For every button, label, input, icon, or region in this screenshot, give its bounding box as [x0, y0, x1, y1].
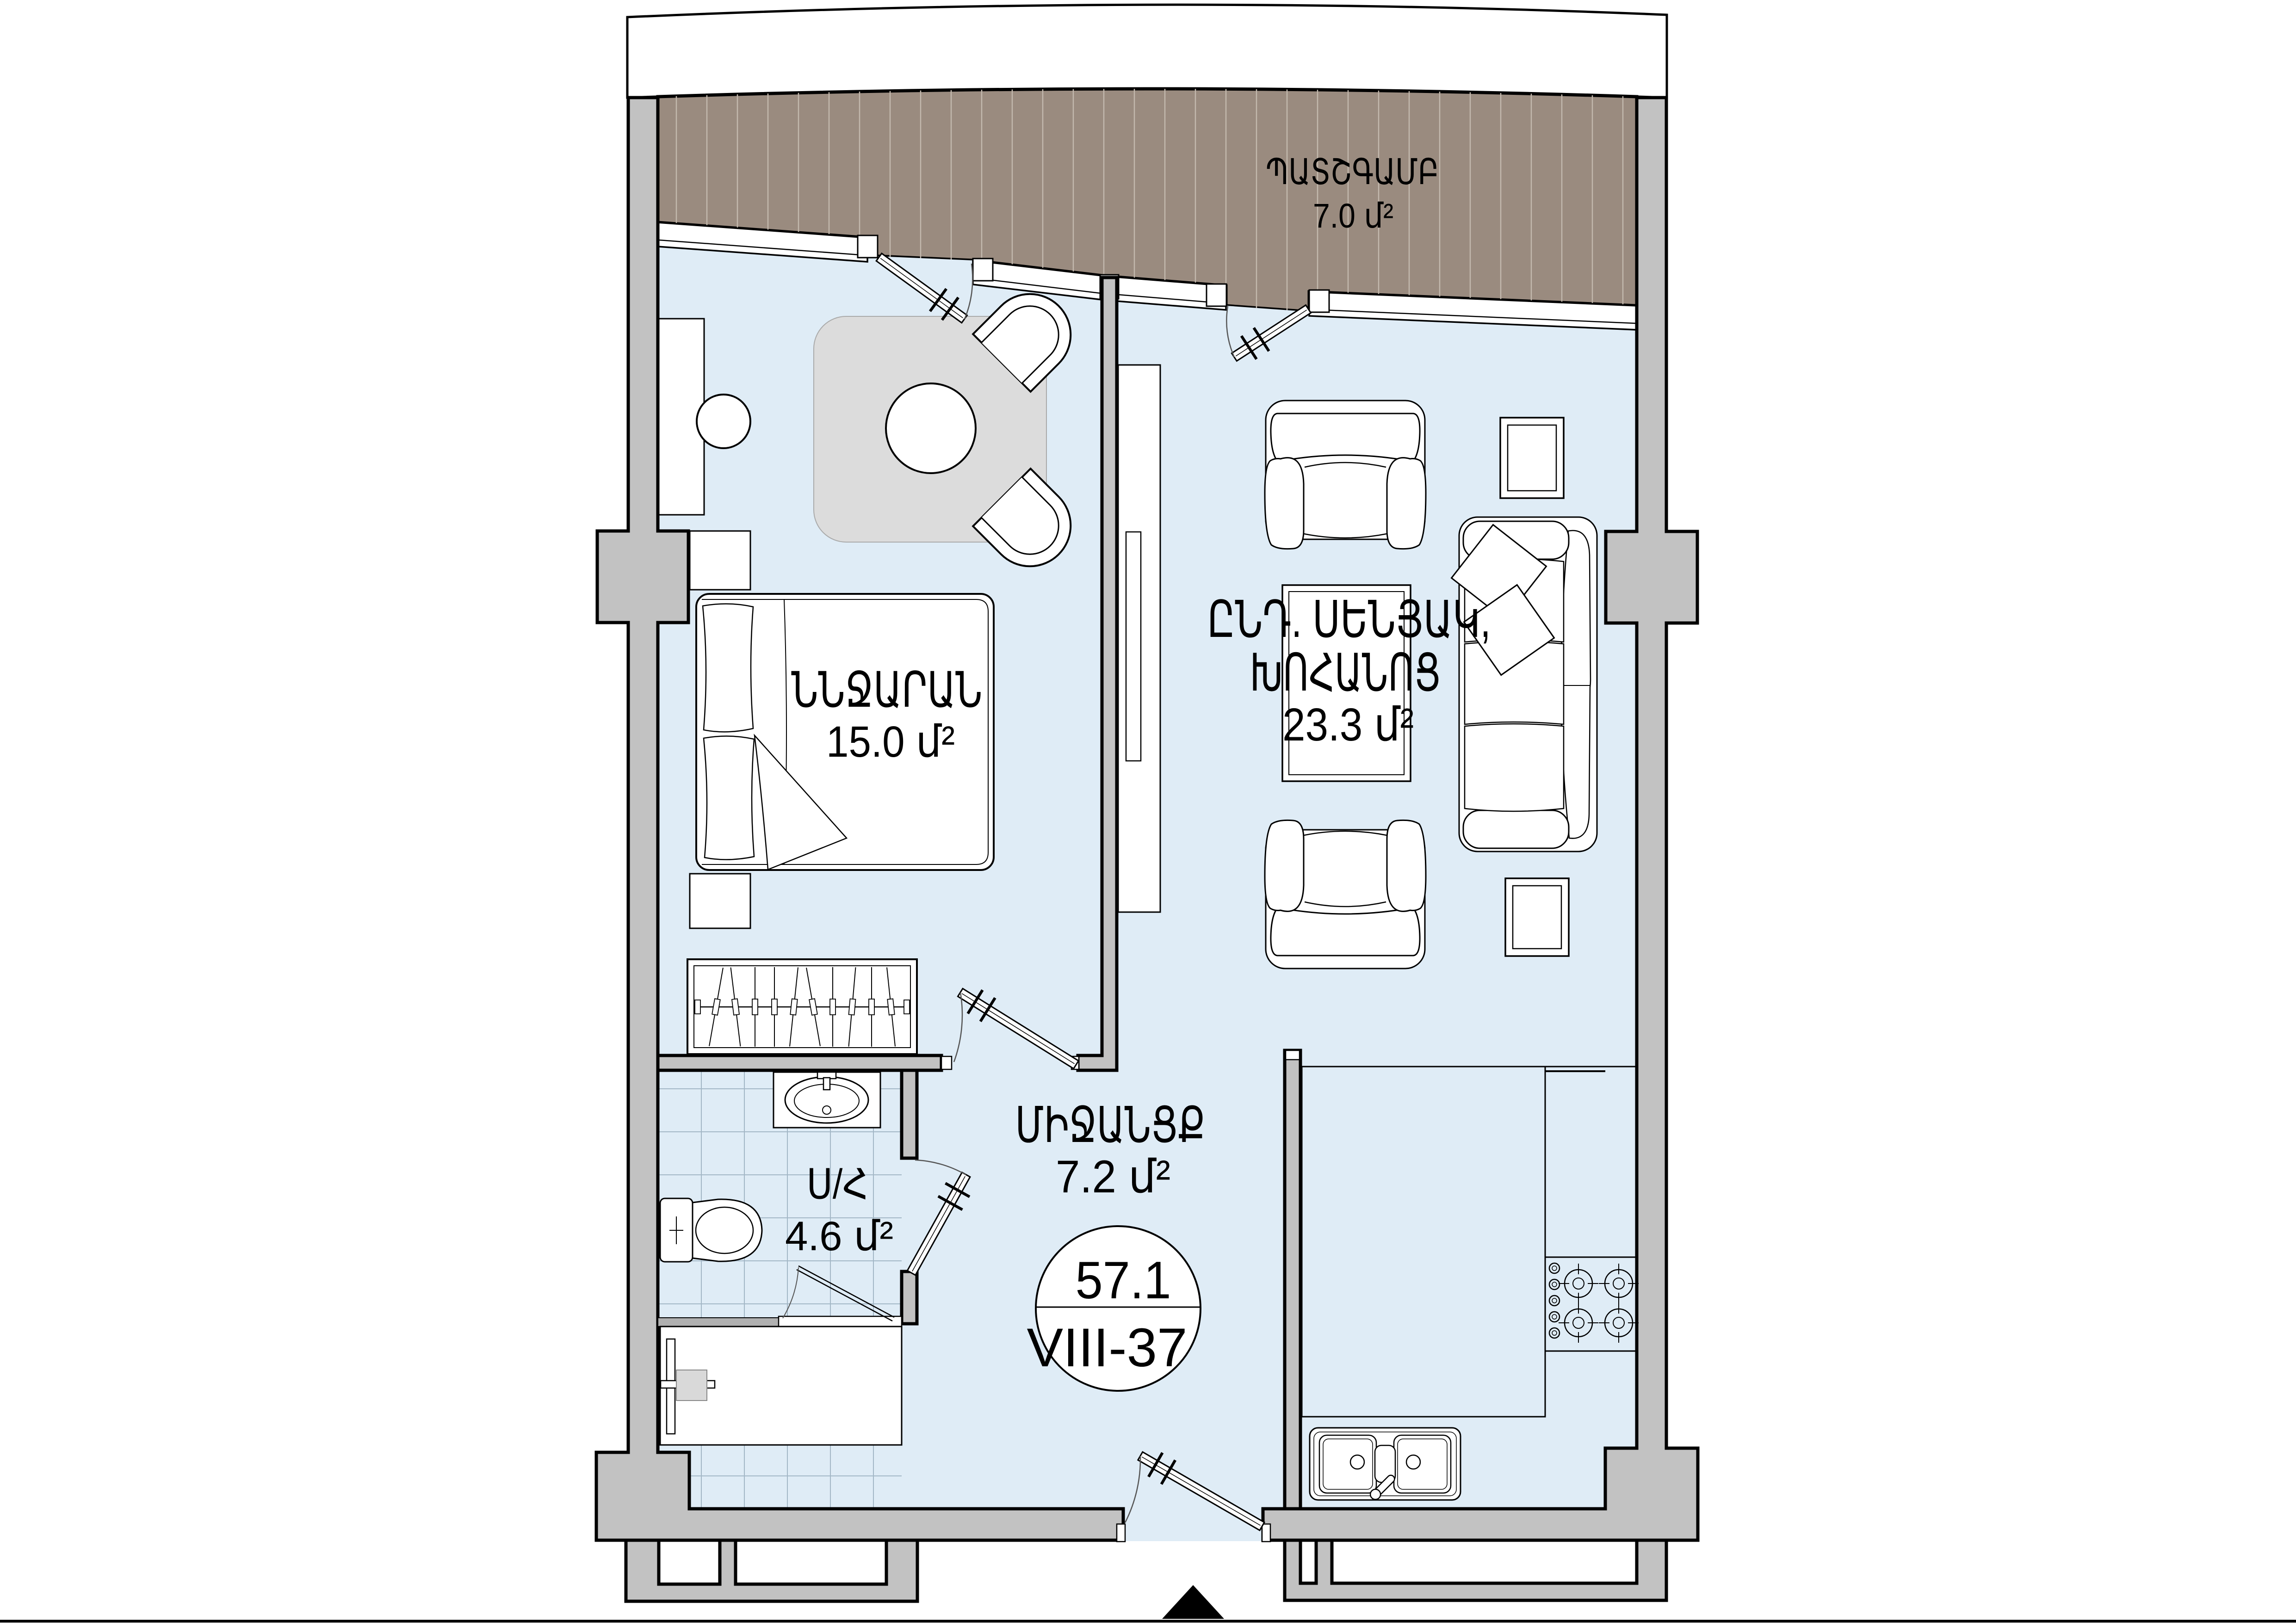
svg-text:4.6 մ²: 4.6 մ² — [785, 1213, 893, 1259]
svg-text:VIII-37: VIII-37 — [1027, 1317, 1188, 1378]
svg-text:57.1: 57.1 — [1076, 1251, 1171, 1310]
svg-text:ԽՈՀԱՆՈՑ: ԽՈՀԱՆՈՑ — [1250, 644, 1441, 702]
svg-text:Ս/Հ: Ս/Հ — [807, 1161, 868, 1208]
svg-text:7.2 մ²: 7.2 մ² — [1056, 1151, 1170, 1202]
svg-text:ՊԱՏՇԳԱՄԲ: ՊԱՏՇԳԱՄԲ — [1266, 152, 1439, 192]
svg-text:ՆՆՋԱՐԱՆ: ՆՆՋԱՐԱՆ — [792, 663, 983, 717]
svg-text:ԸՆԴ. ՍԵՆՅԱԿ,: ԸՆԴ. ՍԵՆՅԱԿ, — [1207, 591, 1491, 648]
svg-text:7.0 մ²: 7.0 մ² — [1313, 197, 1393, 235]
svg-text:ՄԻՋԱՆՑՔ: ՄԻՋԱՆՑՔ — [1015, 1097, 1206, 1153]
svg-text:23.3 մ²: 23.3 մ² — [1282, 699, 1414, 751]
svg-text:15.0 մ²: 15.0 մ² — [826, 717, 955, 766]
